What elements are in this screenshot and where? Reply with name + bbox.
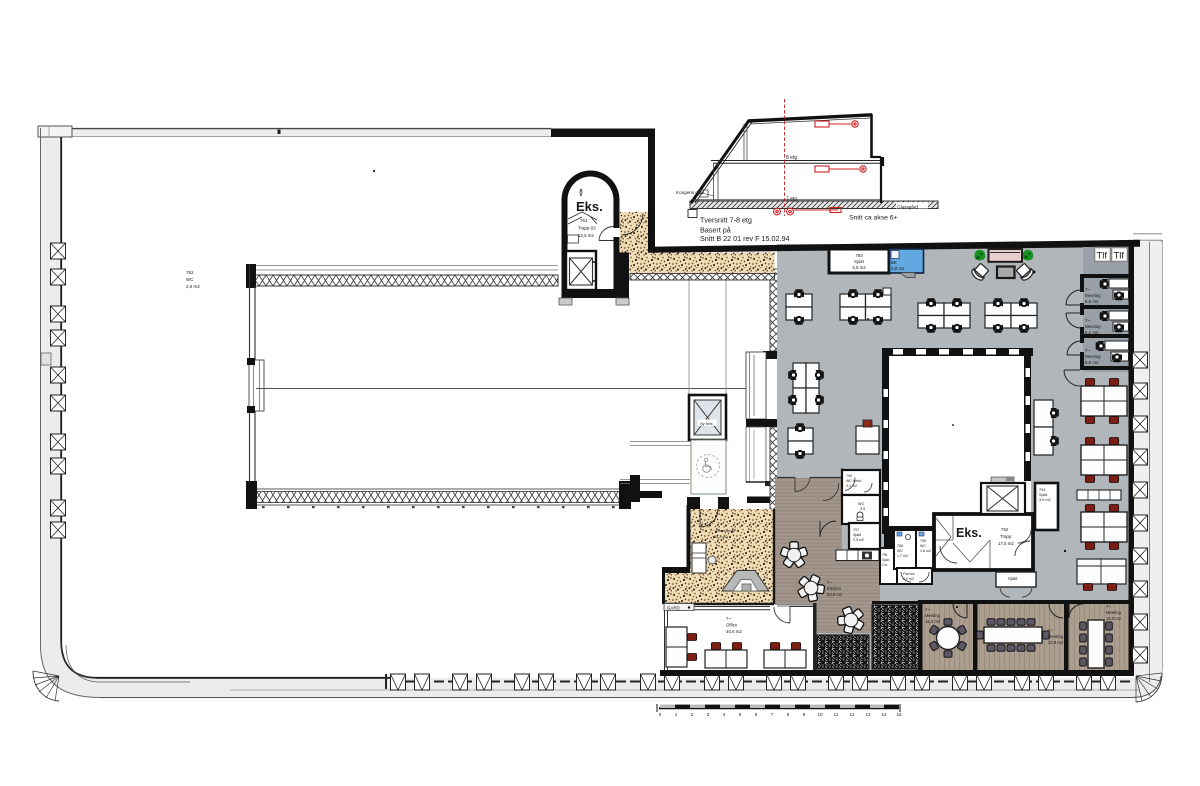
svg-text:GARD: GARD	[667, 606, 680, 611]
svg-text:18,0 m2: 18,0 m2	[1106, 616, 1122, 621]
svg-text:Kitchen: Kitchen	[827, 586, 842, 591]
svg-text:762: 762	[186, 270, 194, 275]
svg-text:7~: 7~	[1106, 604, 1111, 609]
svg-text:7~ Vrimleareal: 7~ Vrimleareal	[710, 529, 735, 533]
svg-text:17,5 m2: 17,5 m2	[998, 541, 1014, 546]
svg-text:2,8 m2: 2,8 m2	[891, 266, 905, 271]
svg-text:2,0 m2: 2,0 m2	[903, 577, 914, 581]
svg-text:Tversnitt 7-8 etg: Tversnitt 7-8 etg	[700, 216, 752, 225]
svg-text:9: 9	[803, 712, 806, 717]
svg-text:Meeting: Meeting	[925, 613, 941, 618]
svg-text:Meeting: Meeting	[1085, 354, 1101, 359]
svg-text:7~: 7~	[1085, 287, 1090, 292]
svg-text:5,6 m2: 5,6 m2	[1085, 299, 1099, 304]
svg-text:WC: WC	[897, 549, 903, 553]
svg-text:Tlf: Tlf	[1114, 251, 1125, 262]
svg-text:5: 5	[739, 712, 742, 717]
svg-text:Meeting: Meeting	[1085, 293, 1101, 298]
svg-text:Meeting: Meeting	[1085, 324, 1101, 329]
svg-text:7~: 7~	[1085, 348, 1090, 353]
svg-text:15: 15	[896, 712, 902, 717]
svg-text:2,9 m2: 2,9 m2	[853, 538, 864, 542]
svg-text:797: 797	[853, 528, 859, 532]
svg-text:12: 12	[849, 712, 855, 717]
svg-text:795: 795	[920, 539, 926, 543]
svg-text:Trapp: Trapp	[1000, 534, 1012, 539]
svg-text:Office: Office	[726, 623, 738, 628]
svg-text:7~: 7~	[1085, 318, 1090, 323]
svg-text:Sjakt: Sjakt	[882, 558, 889, 562]
svg-text:Eks.: Eks.	[576, 199, 603, 214]
svg-text:2: 2	[691, 712, 694, 717]
svg-text:14: 14	[881, 712, 887, 717]
svg-text:793: 793	[855, 253, 863, 258]
svg-text:Sjakt: Sjakt	[1008, 576, 1018, 581]
svg-text:1,6 m2: 1,6 m2	[920, 549, 931, 553]
svg-text:Tlf: Tlf	[1097, 251, 1108, 262]
svg-text:3,5: 3,5	[860, 507, 865, 511]
svg-text:13: 13	[865, 712, 871, 717]
svg-text:2,0 m2: 2,0 m2	[186, 284, 200, 289]
svg-text:55,2 m2: 55,2 m2	[714, 535, 728, 539]
svg-text:Kongens gate: Kongens gate	[676, 190, 705, 195]
svg-text:7 etg: 7 etg	[786, 197, 797, 203]
svg-text:4: 4	[723, 712, 726, 717]
svg-text:Snitt B 22 01 rev F 15.02.94: Snitt B 22 01 rev F 15.02.94	[700, 234, 790, 243]
svg-text:3: 3	[707, 712, 710, 717]
svg-text:Snitt ca akse 6+: Snitt ca akse 6+	[849, 215, 898, 222]
svg-text:1,7 m2: 1,7 m2	[897, 554, 908, 558]
svg-text:766: 766	[897, 544, 903, 548]
svg-text:10: 10	[817, 712, 823, 717]
svg-text:Ny heis: Ny heis	[700, 422, 713, 426]
svg-text:Eks.: Eks.	[956, 526, 982, 540]
svg-text:Sjakt: Sjakt	[853, 533, 861, 537]
svg-text:7: 7	[771, 712, 774, 717]
svg-text:762: 762	[1001, 527, 1009, 532]
svg-text:8 etg: 8 etg	[786, 155, 797, 161]
svg-text:Sjakt: Sjakt	[1039, 493, 1048, 497]
svg-text:WC: WC	[920, 544, 926, 548]
svg-text:0: 0	[659, 712, 662, 717]
svg-text:Forrom: Forrom	[903, 572, 915, 576]
svg-text:Sjakt: Sjakt	[854, 259, 865, 264]
svg-text:4,5 m2: 4,5 m2	[852, 265, 866, 270]
svg-text:WC: WC	[186, 277, 194, 282]
svg-text:7~: 7~	[925, 607, 930, 612]
svg-text:7~: 7~	[827, 580, 832, 585]
svg-text:3,9 m2: 3,9 m2	[1039, 498, 1051, 502]
svg-text:8: 8	[787, 712, 790, 717]
svg-text:11: 11	[834, 712, 839, 717]
svg-text:7~: 7~	[1048, 628, 1053, 633]
svg-text:5,5 m2: 5,5 m2	[1085, 360, 1099, 365]
svg-text:6: 6	[755, 712, 758, 717]
svg-text:790: 790	[846, 474, 852, 478]
svg-text:40,6 m2: 40,6 m2	[726, 629, 742, 634]
svg-text:Trapp-02: Trapp-02	[578, 226, 596, 231]
svg-text:WC turist: WC turist	[846, 479, 861, 483]
svg-text:23,9 m2: 23,9 m2	[1048, 640, 1064, 645]
svg-text:BK: BK	[891, 260, 897, 265]
svg-text:Meeting: Meeting	[1106, 610, 1122, 615]
svg-text:15,4 m2: 15,4 m2	[925, 619, 941, 624]
svg-text:WC: WC	[858, 502, 865, 506]
svg-text:761: 761	[580, 218, 588, 223]
svg-text:53,9 m2: 53,9 m2	[827, 592, 843, 597]
svg-text:796: 796	[882, 553, 888, 557]
svg-text:7~: 7~	[726, 616, 731, 621]
svg-text:Glassgård: Glassgård	[897, 204, 918, 210]
svg-text:1: 1	[675, 712, 678, 717]
svg-text:5,1 m2: 5,1 m2	[1085, 330, 1099, 335]
svg-text:12,5 m2: 12,5 m2	[578, 233, 594, 238]
svg-text:2 m: 2 m	[882, 563, 888, 567]
svg-text:794: 794	[1039, 488, 1045, 492]
svg-text:Meeting: Meeting	[1048, 634, 1064, 639]
